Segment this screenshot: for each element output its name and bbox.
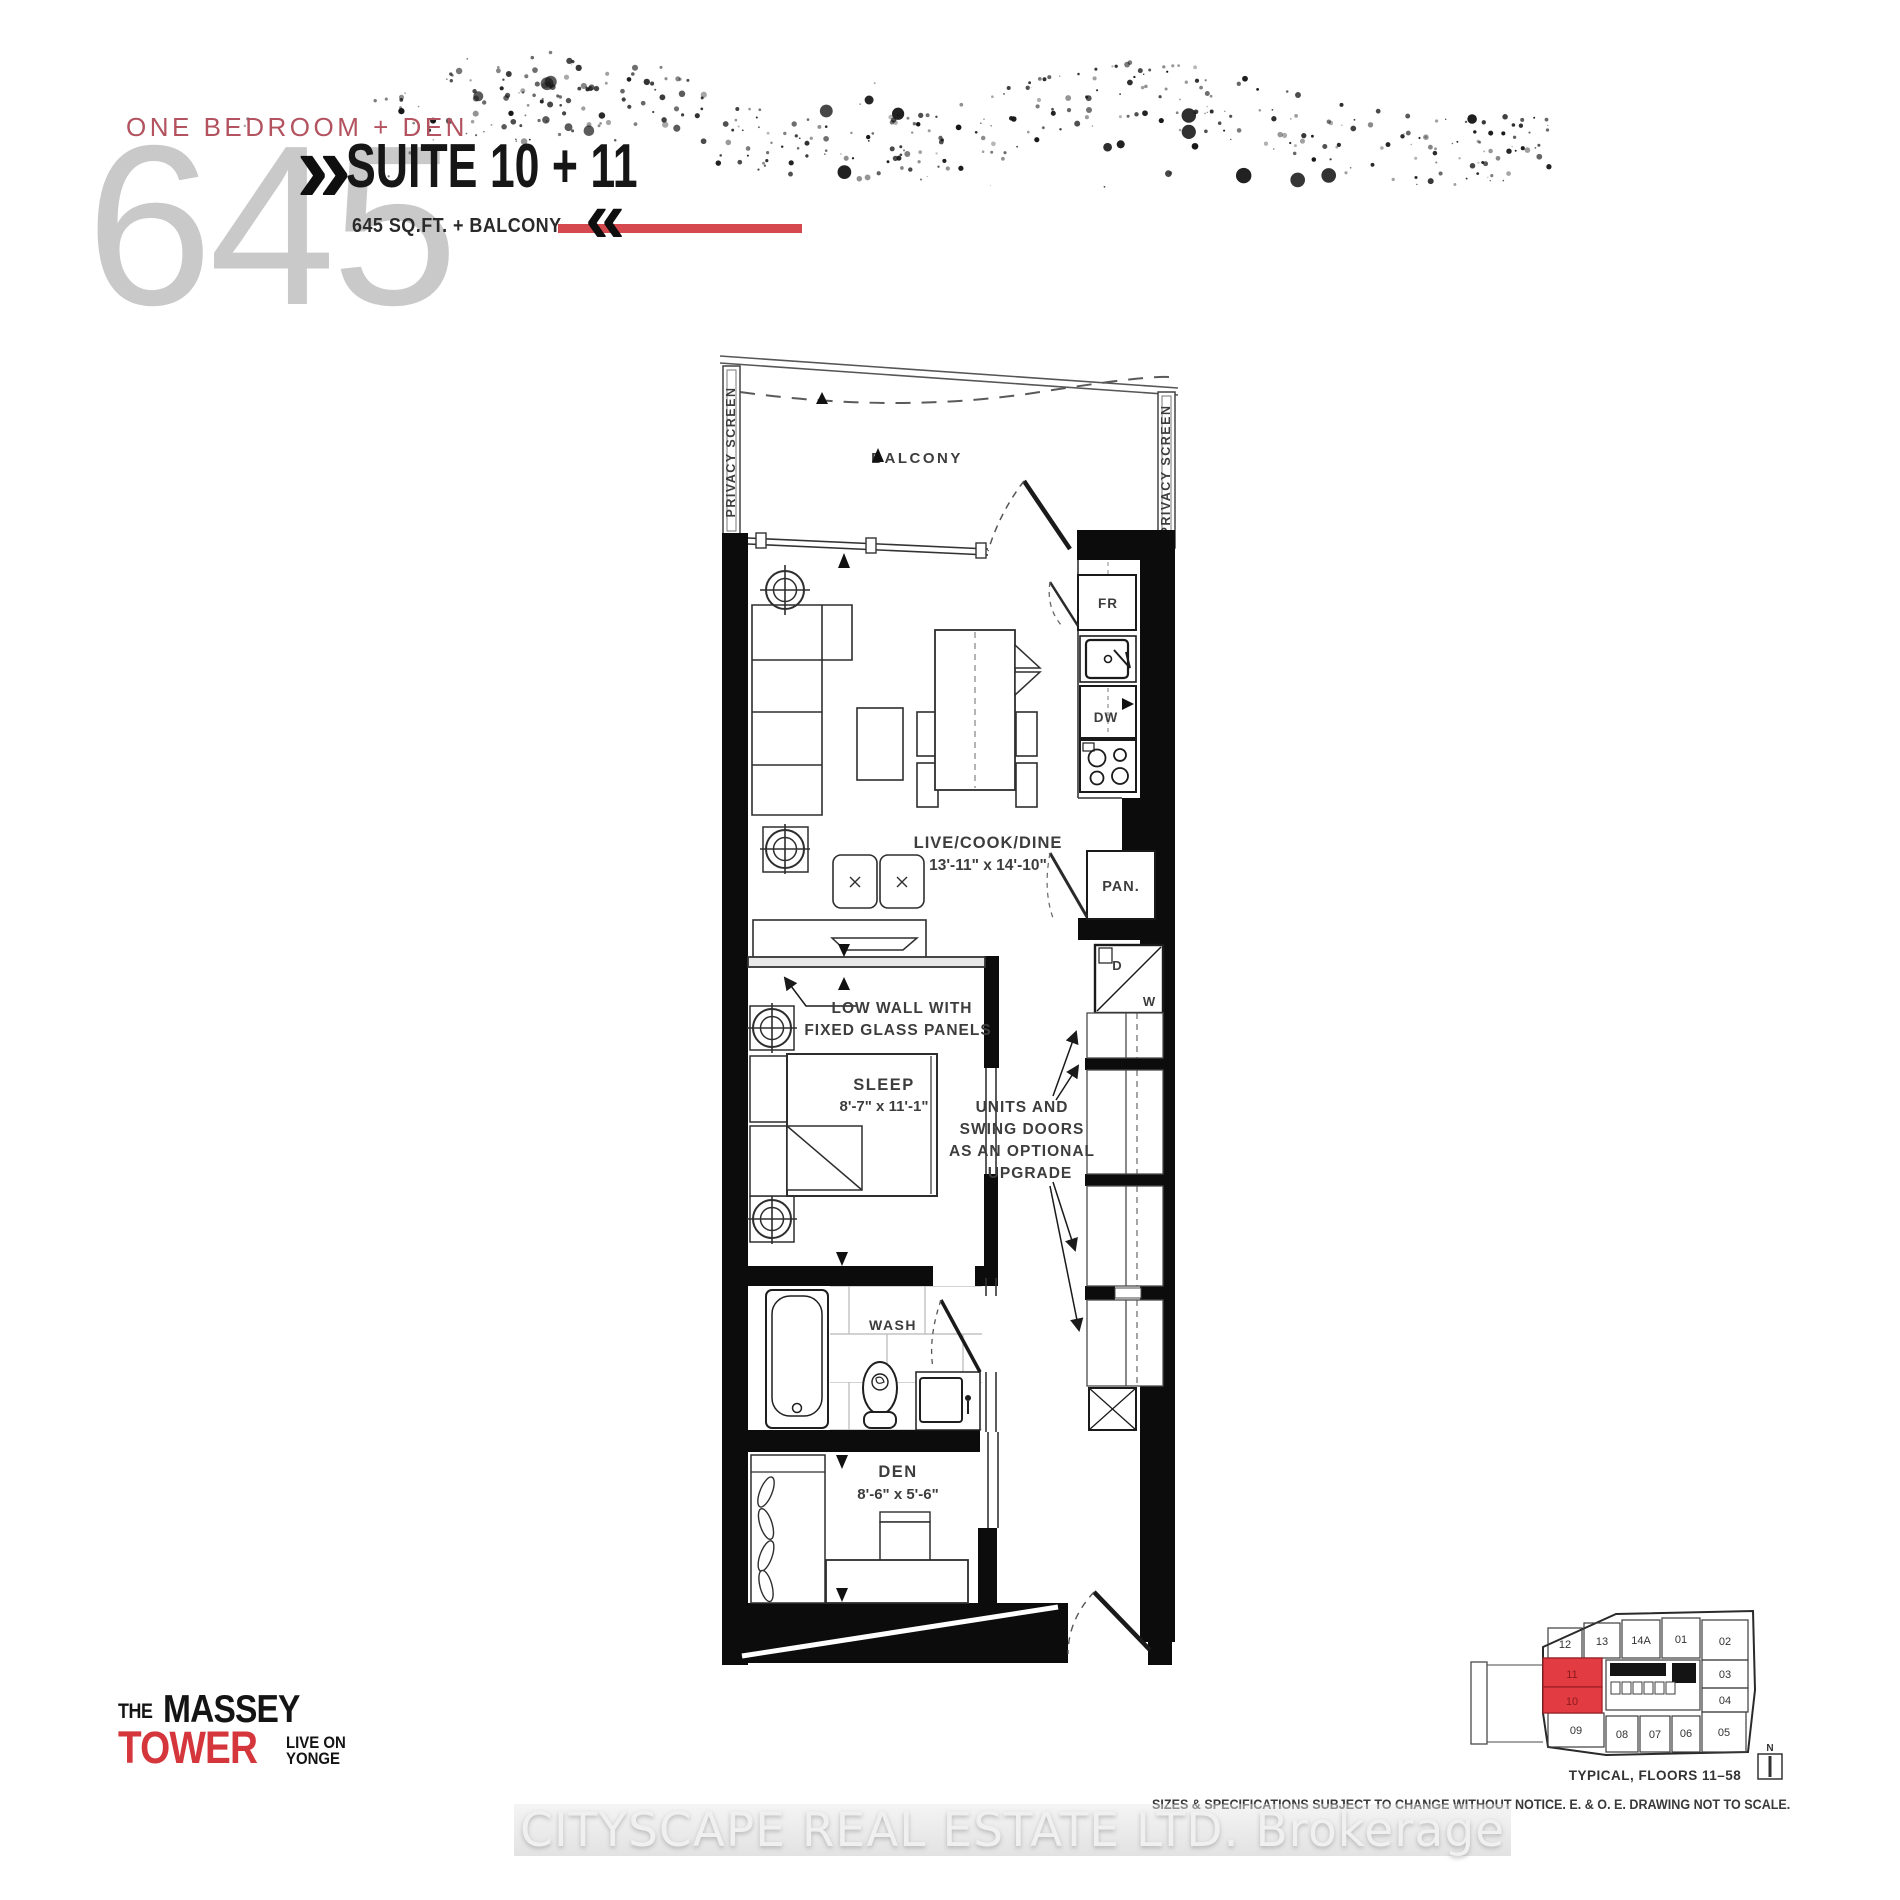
privacy-screen-left: PRIVACY SCREEN [723, 366, 740, 535]
ceiling-light [747, 1003, 797, 1053]
sleep-label: SLEEP [853, 1076, 915, 1094]
vanity-sink [916, 1372, 980, 1430]
key-plan: 12 13 14A 01 02 11 10 09 08 07 06 05 03 … [1450, 1595, 1800, 1795]
svg-text:W: W [1143, 994, 1156, 1009]
svg-text:10: 10 [1566, 1696, 1578, 1708]
balcony-label: BALCONY [871, 450, 963, 467]
chevron-left-icon: « [585, 190, 625, 248]
live-dims: 13'-11" x 14'-10" [929, 857, 1047, 874]
upgrade-note: SWING DOORS [960, 1121, 1085, 1138]
nightstand [750, 1126, 787, 1196]
balcony-door [988, 481, 1070, 551]
low-wall-note: FIXED GLASS PANELS [804, 1022, 991, 1039]
svg-text:11: 11 [1566, 1669, 1577, 1681]
keyplan-core [1606, 1660, 1700, 1710]
logo-yonge: YONGE [286, 1751, 346, 1767]
svg-text:PRIVACY SCREEN: PRIVACY SCREEN [724, 387, 738, 518]
keyplan-caption: TYPICAL, FLOORS 11–58 [1569, 1768, 1742, 1783]
den-area [751, 1455, 968, 1603]
logo-tower: TOWER [118, 1727, 257, 1770]
live-label: LIVE/COOK/DINE [914, 834, 1063, 852]
svg-text:D: D [1112, 958, 1121, 973]
upgrade-note: AS AN OPTIONAL [949, 1143, 1095, 1160]
den-label: DEN [878, 1463, 917, 1481]
bookshelf [751, 1455, 825, 1603]
svg-text:07: 07 [1649, 1729, 1661, 1741]
bathtub [766, 1290, 828, 1428]
svg-text:14A: 14A [1631, 1635, 1651, 1647]
ceiling-light [747, 1194, 797, 1244]
kitchen-sink [1080, 636, 1136, 682]
low-wall-note: LOW WALL WITH [832, 1000, 973, 1017]
den-dims: 8'-6" x 5'-6" [857, 1486, 938, 1503]
ottomans [833, 855, 924, 908]
svg-text:N: N [1766, 1743, 1773, 1754]
massey-tower-logo: THE MASSEY TOWER LIVE ON YONGE [118, 1692, 354, 1770]
keyplan-balcony-strip [1471, 1662, 1487, 1744]
area-detail: 645 SQ.FT. + BALCONY [352, 215, 562, 238]
pantry: PAN. [1047, 851, 1155, 919]
svg-text:02: 02 [1719, 1636, 1731, 1648]
linen-shaft [1089, 1388, 1136, 1430]
svg-text:04: 04 [1719, 1695, 1731, 1707]
svg-text:08: 08 [1616, 1729, 1628, 1741]
kitchen-area: FR DW PAN. [1047, 560, 1155, 919]
svg-text:13: 13 [1596, 1636, 1608, 1648]
wash-label: WASH [869, 1317, 917, 1333]
balcony-area: PRIVACY SCREEN PRIVACY SCREEN BALCONY [720, 356, 1178, 548]
stove [1080, 740, 1136, 792]
svg-text:06: 06 [1680, 1728, 1692, 1740]
svg-text:09: 09 [1570, 1725, 1582, 1737]
dishwasher: DW [1080, 686, 1136, 738]
privacy-screen-right: PRIVACY SCREEN [1158, 392, 1175, 548]
svg-text:05: 05 [1718, 1727, 1730, 1739]
ceiling-light [760, 824, 810, 874]
floor-plan: PRIVACY SCREEN PRIVACY SCREEN BALCONY [560, 270, 1260, 1680]
floorplan-flyer: { "header": { "plan_type": "ONE BEDROOM … [0, 0, 1900, 1900]
sofa [752, 605, 852, 815]
svg-text:FR: FR [1098, 596, 1118, 611]
coffee-table [857, 708, 903, 780]
svg-text:PRIVACY SCREEN: PRIVACY SCREEN [1159, 405, 1173, 536]
washer-dryer: D W [1095, 945, 1163, 1013]
svg-text:01: 01 [1675, 1634, 1687, 1646]
north-arrow-icon: N [1758, 1743, 1782, 1779]
sleep-dims: 8'-7" x 11'-1" [840, 1098, 929, 1115]
svg-text:03: 03 [1719, 1669, 1731, 1681]
svg-text:DW: DW [1094, 710, 1119, 725]
upgrade-note: UNITS AND [976, 1099, 1069, 1116]
upgrade-note: UPGRADE [988, 1165, 1073, 1182]
entry-door [1068, 1592, 1150, 1654]
svg-text:PAN.: PAN. [1102, 879, 1140, 895]
toilet [863, 1362, 897, 1428]
dining-table [917, 630, 1040, 807]
fridge: FR [1049, 575, 1136, 630]
brokerage-watermark: CITYSCAPE REAL ESTATE LTD. Brokerage [514, 1804, 1511, 1856]
svg-text:12: 12 [1559, 1639, 1571, 1651]
chevron-right-icon: » [296, 128, 352, 208]
nightstand [750, 1056, 787, 1122]
